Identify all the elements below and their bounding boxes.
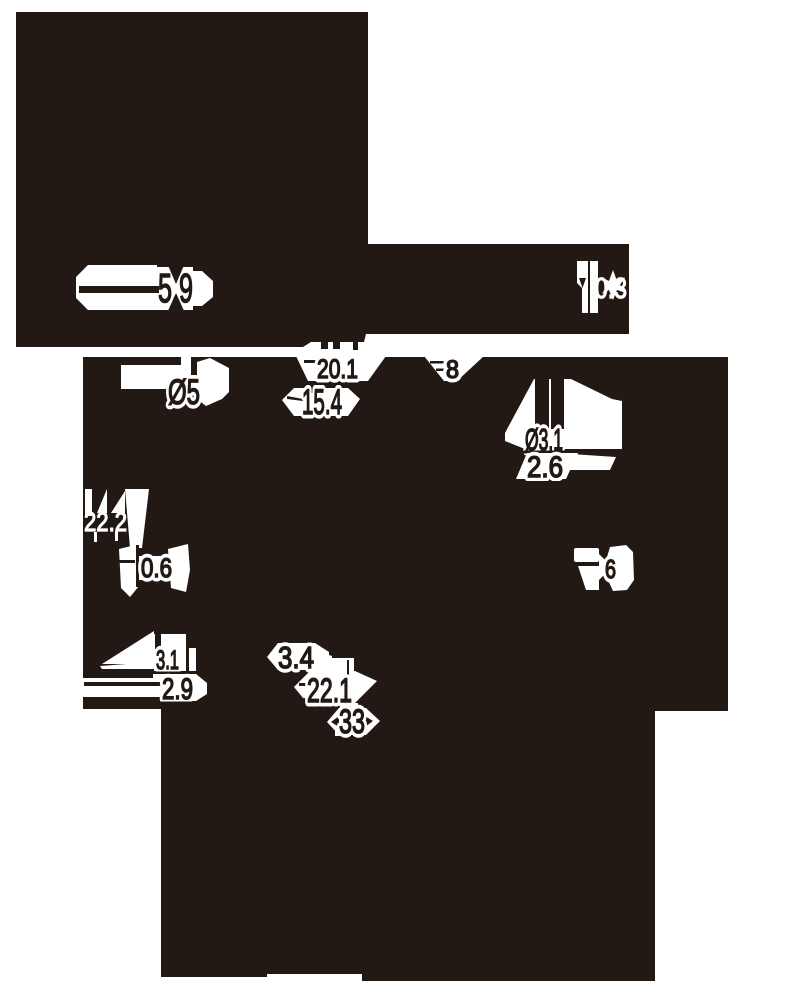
svg-text:0.6: 0.6 — [141, 553, 172, 583]
svg-text:Ø5: Ø5 — [168, 373, 200, 412]
svg-text:15.4: 15.4 — [302, 383, 342, 422]
svg-text:8: 8 — [446, 356, 459, 384]
svg-text:3.1: 3.1 — [156, 645, 179, 675]
svg-text:3.4: 3.4 — [278, 640, 314, 675]
svg-text:33: 33 — [339, 703, 365, 741]
svg-text:22.2: 22.2 — [84, 507, 127, 537]
svg-text:20.1: 20.1 — [317, 354, 358, 384]
svg-text:0.3: 0.3 — [595, 273, 627, 305]
svg-text:5.9: 5.9 — [158, 265, 193, 311]
svg-text:2.9: 2.9 — [162, 673, 193, 706]
svg-text:6: 6 — [605, 554, 616, 584]
svg-text:2.6: 2.6 — [527, 451, 563, 484]
